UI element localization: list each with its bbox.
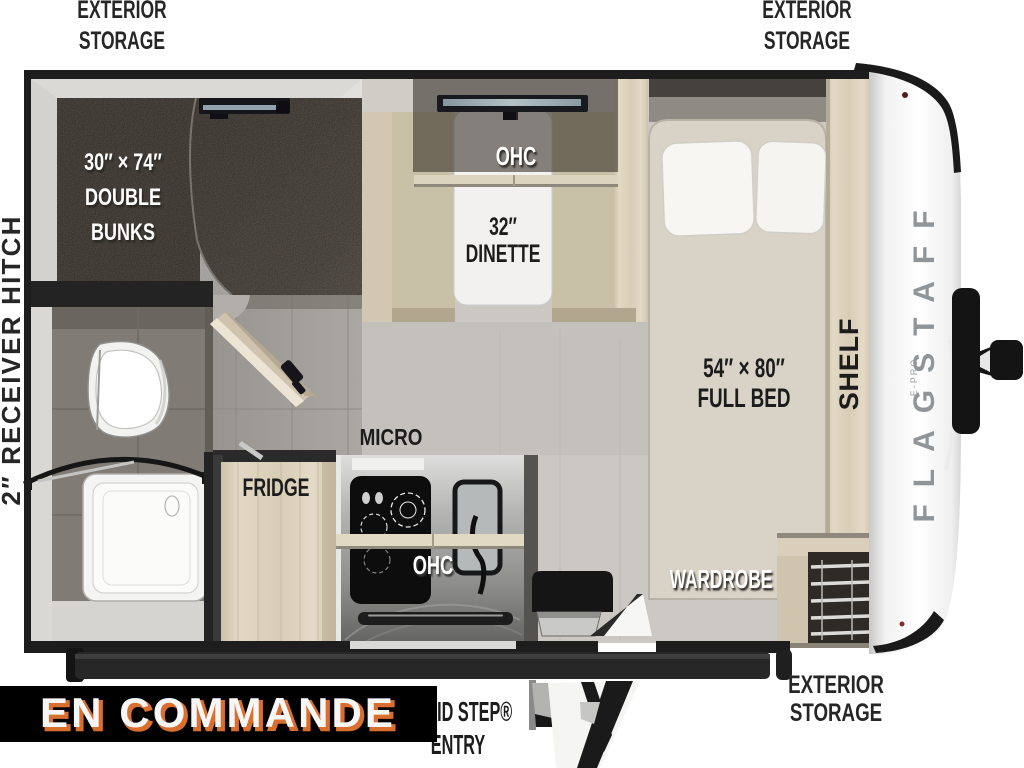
svg-text:WARDROBE: WARDROBE	[670, 564, 773, 593]
svg-text:STORAGE: STORAGE	[79, 26, 165, 55]
svg-text:54″ × 80″: 54″ × 80″	[703, 353, 785, 383]
svg-text:ENTRY: ENTRY	[431, 728, 485, 760]
svg-text:EN COMMANDE: EN COMMANDE	[40, 689, 396, 736]
svg-text:EXTERIOR: EXTERIOR	[77, 0, 167, 24]
svg-text:EXTERIOR: EXTERIOR	[788, 670, 884, 698]
svg-text:FRIDGE: FRIDGE	[242, 473, 309, 502]
svg-text:OHC: OHC	[413, 551, 453, 580]
svg-text:STORAGE: STORAGE	[790, 698, 882, 726]
svg-text:30″ × 74″: 30″ × 74″	[84, 150, 162, 176]
svg-text:EXTERIOR: EXTERIOR	[762, 0, 852, 24]
svg-text:SHELF: SHELF	[834, 318, 864, 411]
svg-text:2″ RECEIVER HITCH: 2″ RECEIVER HITCH	[0, 214, 26, 505]
svg-text:DINETTE: DINETTE	[466, 239, 541, 268]
svg-text:STORAGE: STORAGE	[764, 26, 850, 55]
svg-text:MICRO: MICRO	[360, 425, 423, 450]
svg-text:E-PRO: E-PRO	[909, 358, 919, 397]
svg-text:OHC: OHC	[496, 142, 536, 171]
svg-text:32″: 32″	[489, 212, 517, 241]
svg-text:BUNKS: BUNKS	[91, 220, 155, 246]
svg-text:DOUBLE: DOUBLE	[85, 185, 161, 211]
svg-text:FULL BED: FULL BED	[697, 383, 790, 413]
